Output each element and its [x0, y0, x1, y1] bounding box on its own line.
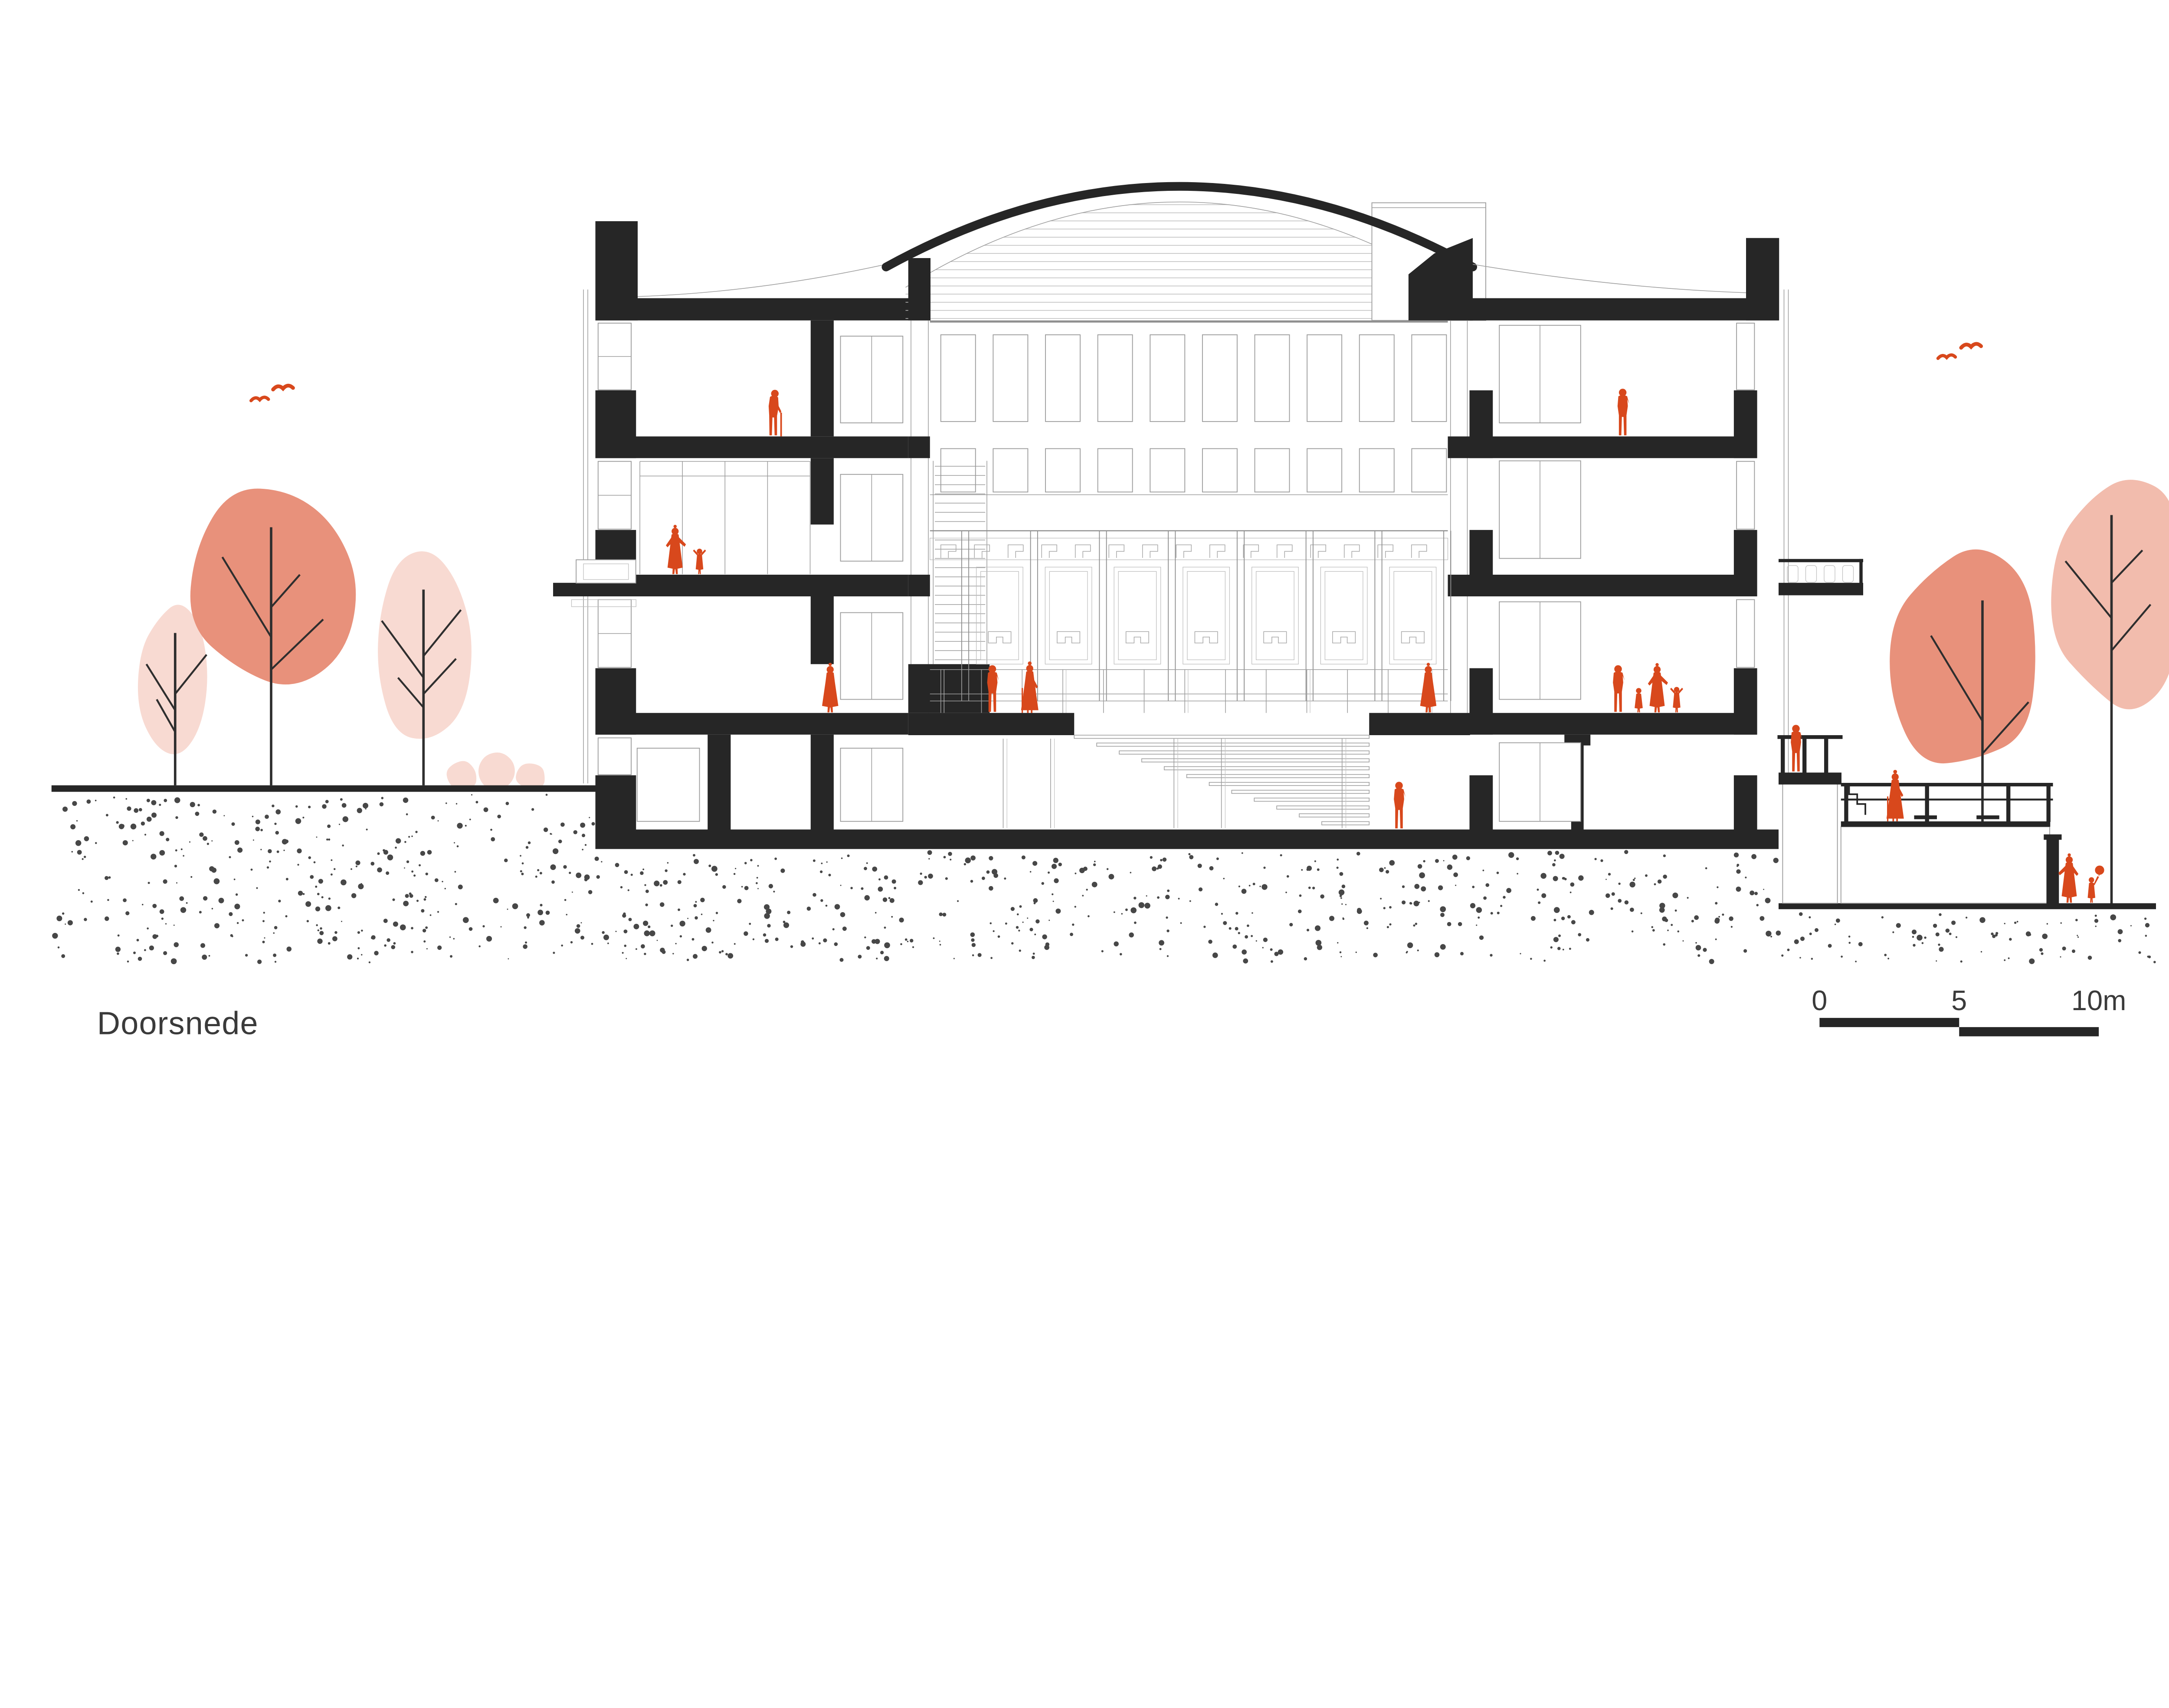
mid-landing-wall [1841, 827, 2050, 903]
stair-tread [1119, 751, 1369, 754]
elderly-woman-with-cane-atrium [1021, 661, 1039, 713]
balcony-furniture [1787, 566, 1854, 582]
bird-right-high [1961, 344, 1981, 348]
stair-tread [1142, 759, 1369, 762]
left-roof-line [638, 264, 886, 296]
stair-tread [1322, 821, 1369, 825]
clerestory-window [993, 335, 1028, 422]
right-wing-windows [1499, 325, 1581, 821]
stair-tread [1277, 806, 1369, 809]
bird-left-low [251, 397, 269, 401]
stair-tread [1209, 782, 1370, 786]
atrium-floor-slab-left [908, 713, 1075, 735]
atrium-ceiling-line [930, 321, 1448, 323]
clerestory-window [1202, 335, 1237, 422]
left-roof-slab [596, 298, 930, 321]
clerestory-window [1307, 448, 1342, 492]
drawing-title: Doorsnede [97, 1005, 259, 1041]
scale-label-0: 0 [1812, 985, 1827, 1016]
toddler-arms-up-floor3 [693, 549, 706, 574]
ramp-grille-2 [1976, 815, 1999, 819]
right-outer-wall-windows [1737, 323, 1754, 667]
clerestory-window [993, 448, 1028, 492]
stair-tread [1299, 814, 1369, 817]
scale-label-10m: 10m [2071, 985, 2126, 1016]
tree-large-left [190, 488, 356, 785]
clerestory-window [1360, 335, 1394, 422]
clerestory-window [1412, 448, 1446, 492]
atrium-right-wall-lines [1451, 321, 1468, 713]
left-floor4-slab [596, 436, 908, 458]
mother-at-street [2058, 854, 2078, 903]
left-basement-wall [708, 735, 731, 830]
clerestory-window [1307, 335, 1342, 422]
clerestory-window [1360, 448, 1394, 492]
clerestory-window [941, 448, 976, 492]
man-on-top-landing [1791, 725, 1802, 772]
clerestory-window [941, 335, 976, 422]
right-roof-line [1473, 264, 1746, 293]
right-parapet [1746, 238, 1779, 321]
right-floor2-slab [1470, 713, 1757, 735]
section-drawing-page: Doorsnede 0 5 10m [0, 0, 2169, 1067]
left-wing [553, 221, 930, 849]
tree-canopy [2051, 480, 2169, 709]
stair-tread [1254, 798, 1369, 802]
clerestory-window [1202, 448, 1237, 492]
right-floor3-slab [1470, 575, 1757, 596]
elderly-man-with-cane-floor4 [769, 390, 782, 437]
clerestory-window [1150, 335, 1185, 422]
atrium-left-wall-lines [911, 321, 928, 713]
tree-canopy [138, 605, 207, 754]
mother-reaching-floor3 [666, 525, 686, 574]
toddler-ground-floor [1635, 688, 1643, 712]
clerestory-window [1045, 335, 1080, 422]
soil-stipple-texture [52, 794, 2156, 964]
bush-left-2 [478, 753, 515, 790]
clerestory-window [1255, 448, 1290, 492]
left-floor2-slab [596, 713, 908, 735]
terrain [52, 785, 2156, 964]
right-atrium-side-piers [1470, 390, 1493, 849]
left-glazing-band [640, 461, 810, 574]
child-with-balloon [2088, 866, 2104, 903]
clerestory-window [1098, 335, 1133, 422]
right-roof-slab [1470, 298, 1779, 321]
clerestory-windows-upper [941, 335, 1447, 422]
historic-facade [930, 531, 1451, 701]
scale-bar: 0 5 10m [1812, 985, 2126, 1037]
scale-label-5: 5 [1951, 985, 1967, 1016]
scale-bar-segment-0-5 [1819, 1018, 1959, 1027]
child-ground-floor [1670, 687, 1683, 713]
right-floor4-slab [1470, 436, 1757, 458]
top-landing-railing [1778, 735, 1843, 773]
mid-landing-surface [1841, 821, 2051, 827]
foundation-slab [596, 830, 1779, 849]
clerestory-window [1150, 448, 1185, 492]
woman-on-ramp [1887, 770, 1904, 821]
atrium-ground-glazing [930, 670, 1448, 713]
top-landing-wall [1782, 784, 1837, 903]
doorsnede-section-drawing: Doorsnede 0 5 10m [0, 0, 2169, 1067]
exterior-ramp [1778, 735, 2062, 904]
ground-line-left [52, 785, 596, 792]
tree-canopy [1890, 550, 2035, 763]
woman-in-dress-floor2 [822, 663, 839, 712]
bush-left-1 [447, 761, 477, 790]
right-facade-outer-lines [1784, 290, 1789, 775]
left-floor3-slab [596, 575, 908, 596]
stair-tread [1097, 743, 1369, 746]
woman-right-of-atrium [1420, 663, 1437, 712]
arch-left-landing-mass [908, 258, 931, 321]
clerestory-window [1255, 335, 1290, 422]
ground-line-right [1779, 903, 2156, 910]
tree-small-left [138, 605, 207, 785]
end-bollard [2047, 838, 2059, 904]
mid-landing-railing [1841, 783, 2053, 822]
clerestory-window [1045, 448, 1080, 492]
inner-arch-line [906, 202, 1454, 288]
tree-far-right [2051, 480, 2169, 903]
tree-canopy [190, 488, 356, 684]
man-in-basement [1394, 782, 1406, 829]
left-facade-outer-lines [583, 290, 588, 784]
stair-tread [1164, 767, 1370, 770]
scale-bar-segment-5-10 [1959, 1027, 2099, 1036]
bird-left-high [273, 386, 293, 389]
left-basement-window [637, 748, 700, 821]
clerestory-windows-lower [941, 448, 1447, 492]
mother-ground-floor [1648, 663, 1668, 713]
right-balcony [1779, 559, 1863, 596]
stair-tread [1232, 790, 1369, 794]
ramp-grille-1 [1914, 815, 1937, 819]
clerestory-window [1098, 448, 1133, 492]
bird-right-low [1938, 355, 1956, 358]
man-top-floor-right-wing [1618, 389, 1629, 435]
end-bollard-cap [2044, 834, 2061, 840]
tree-mid-left [378, 551, 472, 785]
stair-tread [1074, 735, 1369, 739]
father-ground-floor [1613, 665, 1625, 712]
left-balcony [572, 560, 636, 607]
clerestory-window [1412, 335, 1446, 422]
top-landing-slab [1779, 772, 1841, 785]
atrium-floor-slab-right [1369, 713, 1470, 735]
